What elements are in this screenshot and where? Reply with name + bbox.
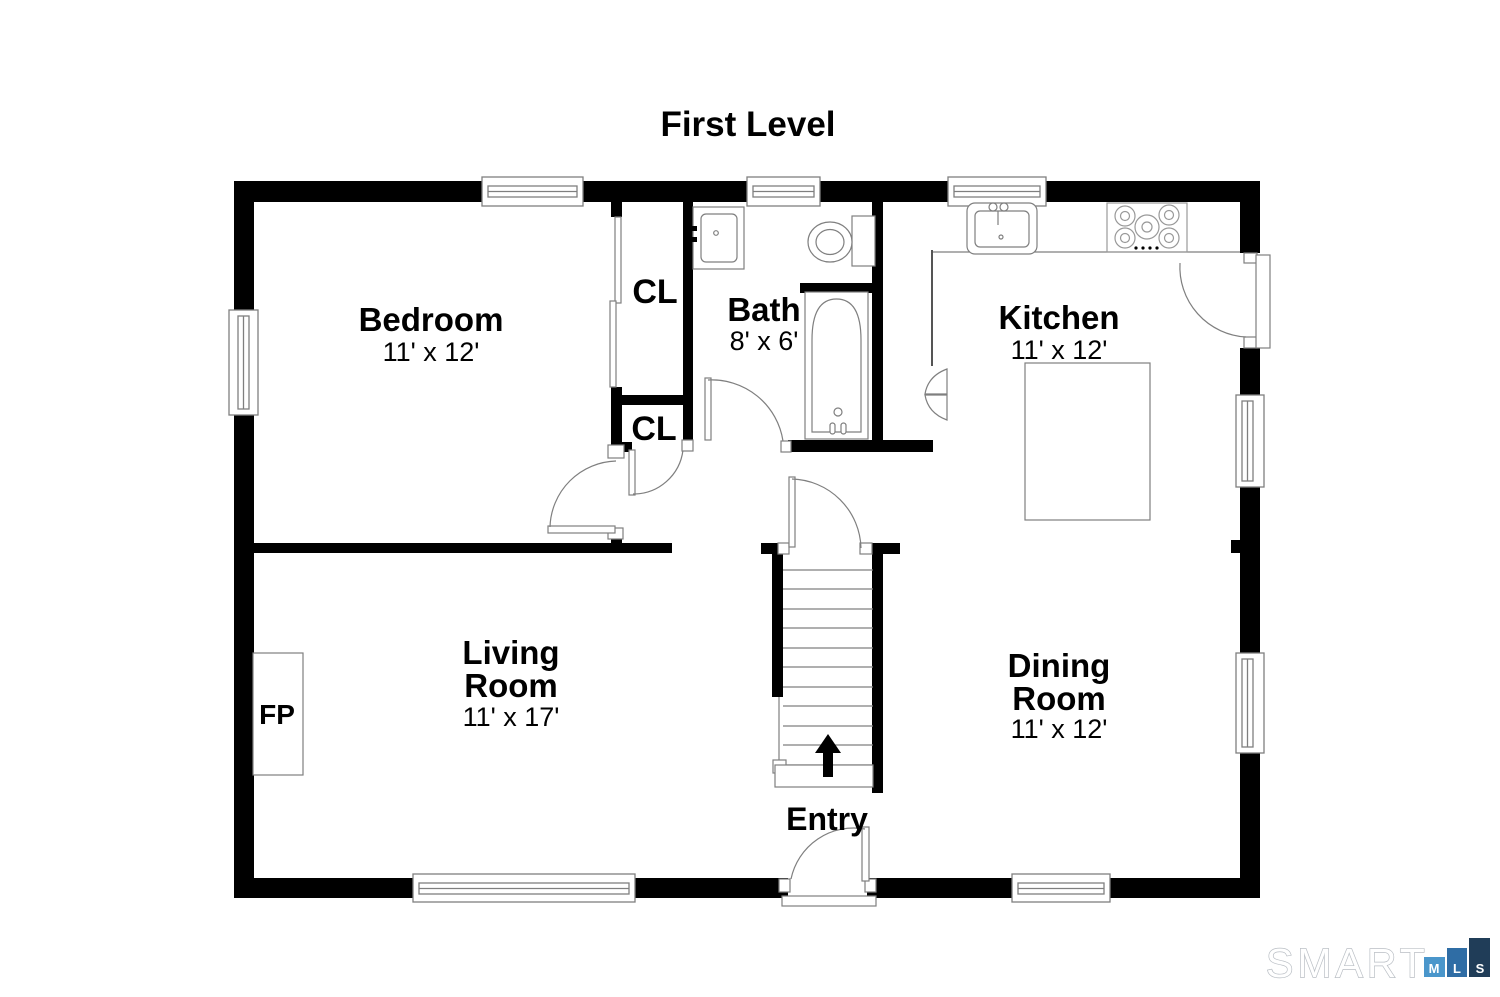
door-jamb bbox=[781, 441, 791, 452]
stove-knobs bbox=[1134, 246, 1158, 249]
door-jamb bbox=[860, 543, 872, 554]
window-bath-top bbox=[747, 177, 820, 206]
living-room-label-line1: Living bbox=[462, 634, 559, 671]
logo-letter-s: S bbox=[1476, 961, 1485, 976]
faucet-handle bbox=[687, 237, 697, 242]
window-dining-right bbox=[1236, 653, 1264, 753]
door-closet-sliding bbox=[610, 217, 621, 387]
kitchen-dims: 11' x 12' bbox=[1011, 335, 1108, 365]
door-swing-arc bbox=[550, 461, 616, 527]
bathtub bbox=[805, 292, 868, 439]
plan-title: First Level bbox=[660, 105, 835, 144]
wall-stair-top-right-stub bbox=[872, 543, 900, 554]
door-leaf bbox=[548, 526, 615, 533]
door-threshold bbox=[782, 896, 876, 906]
kitchen-label: Kitchen bbox=[998, 299, 1119, 336]
faucet bbox=[1000, 203, 1008, 211]
sliding-panel bbox=[610, 301, 616, 387]
closet-lower-label: CL bbox=[631, 410, 676, 448]
door-swing-arc bbox=[633, 450, 683, 494]
tub-faucet bbox=[841, 423, 846, 434]
dining-room-dims: 11' x 12' bbox=[1011, 714, 1108, 744]
logo-letter-m: M bbox=[1429, 961, 1440, 976]
door-jamb bbox=[608, 445, 624, 458]
door-closet-lower bbox=[629, 450, 683, 495]
door-bedroom bbox=[548, 445, 624, 539]
wall-dining-right-stub bbox=[1231, 540, 1242, 553]
window-dining-bottom bbox=[1012, 874, 1110, 902]
bifold-panel bbox=[925, 369, 947, 394]
floor-plan-canvas: First Level Bedroom 11' x 12' CL CL Bath… bbox=[0, 0, 1500, 997]
window-kitchen-top bbox=[948, 177, 1046, 206]
door-swing-arc bbox=[1180, 263, 1246, 337]
bedroom-dims: 11' x 12' bbox=[383, 337, 480, 367]
wall-bedroom-living-divider bbox=[234, 543, 672, 553]
bath-dims: 8' x 6' bbox=[730, 326, 799, 356]
door-leaf bbox=[789, 477, 795, 547]
toilet-tank bbox=[852, 216, 875, 266]
tub-faucet bbox=[830, 423, 835, 434]
door-swing-arc bbox=[708, 380, 783, 441]
wall-between-closets bbox=[611, 395, 693, 405]
door-bifold-kitchen bbox=[925, 369, 947, 420]
wall-stair-right bbox=[872, 543, 883, 793]
bath-label: Bath bbox=[727, 291, 800, 328]
door-jamb bbox=[1244, 337, 1257, 348]
exterior-walls bbox=[234, 181, 1260, 898]
closet-upper-label: CL bbox=[632, 273, 677, 311]
door-leaf bbox=[629, 450, 635, 495]
drain bbox=[999, 235, 1003, 239]
faucet bbox=[989, 203, 997, 211]
door-leaf bbox=[705, 378, 711, 440]
door-stair-top bbox=[778, 477, 872, 554]
door-leaf bbox=[1256, 255, 1270, 348]
floor-plan-page: First Level Bedroom 11' x 12' CL CL Bath… bbox=[0, 0, 1500, 997]
logo-brand-text: SMART bbox=[1266, 940, 1429, 986]
entry-label: Entry bbox=[786, 801, 868, 837]
door-entry bbox=[779, 827, 876, 906]
door-swing-arc bbox=[792, 479, 861, 548]
door-jamb bbox=[778, 543, 789, 554]
living-room-dims: 11' x 17' bbox=[463, 702, 560, 732]
sliding-panel bbox=[615, 217, 621, 303]
logo-letter-l: L bbox=[1453, 961, 1461, 976]
tub-drain bbox=[834, 408, 842, 416]
kitchen-island bbox=[1025, 363, 1150, 520]
wall-stair-top-left-stub bbox=[761, 543, 778, 554]
living-room-label-line2: Room bbox=[464, 667, 558, 704]
stove-cooktop bbox=[1107, 203, 1187, 252]
doors bbox=[548, 217, 1270, 906]
dining-room-label-line1: Dining bbox=[1008, 647, 1111, 684]
window-living-bottom bbox=[413, 874, 635, 902]
bedroom-label: Bedroom bbox=[359, 301, 504, 338]
toilet bbox=[808, 216, 875, 266]
window-bedroom-top bbox=[482, 177, 583, 206]
bath-sink bbox=[687, 207, 744, 269]
dining-room-label-line2: Room bbox=[1012, 680, 1106, 717]
windows bbox=[229, 177, 1264, 902]
window-bedroom-left bbox=[229, 310, 258, 415]
door-kitchen-exterior bbox=[1180, 253, 1270, 348]
door-jamb bbox=[682, 440, 693, 451]
wall-bath-bottom bbox=[788, 440, 933, 452]
smartmls-logo: SMART M L S bbox=[1266, 938, 1490, 986]
bifold-panel bbox=[925, 395, 947, 420]
window-kitchen-right bbox=[1236, 395, 1264, 487]
door-jamb bbox=[779, 879, 790, 892]
door-jamb bbox=[1244, 253, 1257, 263]
door-bath bbox=[682, 378, 791, 452]
faucet-handle bbox=[687, 226, 697, 231]
wall-left bbox=[234, 181, 254, 898]
fireplace-label: FP bbox=[259, 699, 295, 730]
wall-bedroom-closet-top-stub bbox=[611, 202, 622, 217]
wall-stair-left bbox=[772, 543, 783, 697]
kitchen-sink bbox=[967, 203, 1037, 254]
